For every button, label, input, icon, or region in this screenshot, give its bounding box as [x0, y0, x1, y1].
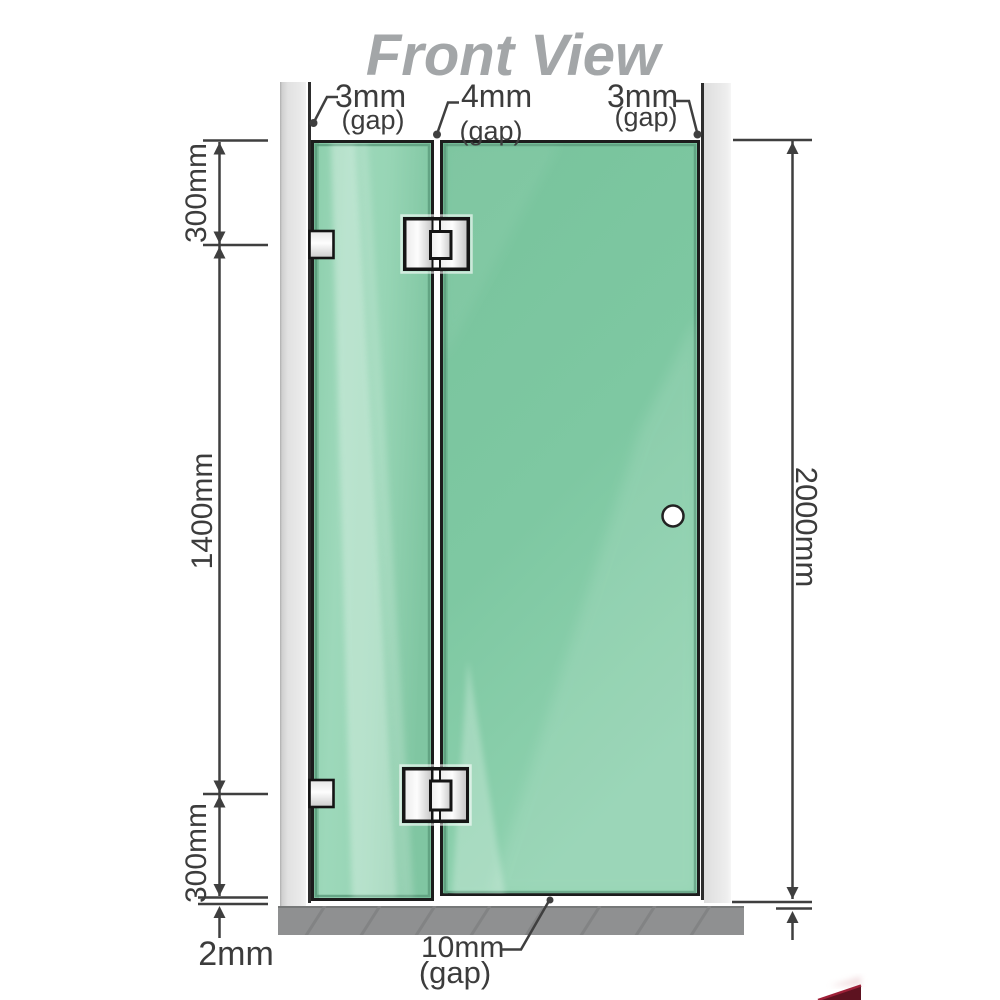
- svg-text:(gap): (gap): [341, 105, 404, 135]
- svg-text:1400mm: 1400mm: [186, 453, 219, 570]
- svg-text:(gap): (gap): [459, 116, 522, 146]
- svg-text:(gap): (gap): [419, 955, 491, 990]
- svg-text:300mm: 300mm: [180, 803, 213, 903]
- svg-text:2mm: 2mm: [198, 935, 274, 973]
- svg-text:2000mm: 2000mm: [789, 467, 824, 588]
- svg-text:(gap): (gap): [614, 102, 677, 132]
- svg-text:4mm: 4mm: [461, 78, 532, 114]
- svg-text:300mm: 300mm: [180, 143, 213, 243]
